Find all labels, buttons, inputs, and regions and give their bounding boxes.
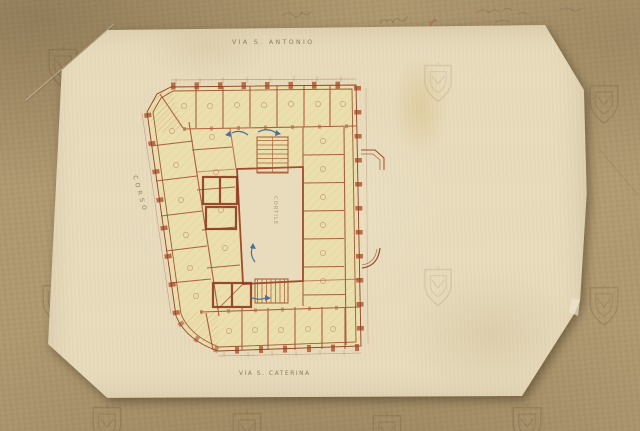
- courtyard-label-cortile: CORTILE: [272, 196, 278, 225]
- torn-edge-highlight: [569, 298, 580, 316]
- street-label-corso: CORSO: [131, 175, 149, 215]
- right-facade-projections: [361, 150, 384, 268]
- staircase-top: [257, 137, 288, 173]
- street-label-via-s-antonio: VIA S. ANTONIO: [232, 39, 315, 46]
- watermark-shield-icon: [425, 266, 451, 305]
- watermark-shield-icon: [425, 62, 451, 101]
- floor-plan-drawing: VIA S. ANTONIO VIA S. CATERINA CORSO COR…: [0, 0, 640, 431]
- scanned-floor-plan-photograph: VIA S. ANTONIO VIA S. CATERINA CORSO COR…: [0, 0, 640, 431]
- courtyard: [237, 167, 303, 284]
- street-label-via-s-caterina: VIA S. CATERINA: [239, 371, 311, 377]
